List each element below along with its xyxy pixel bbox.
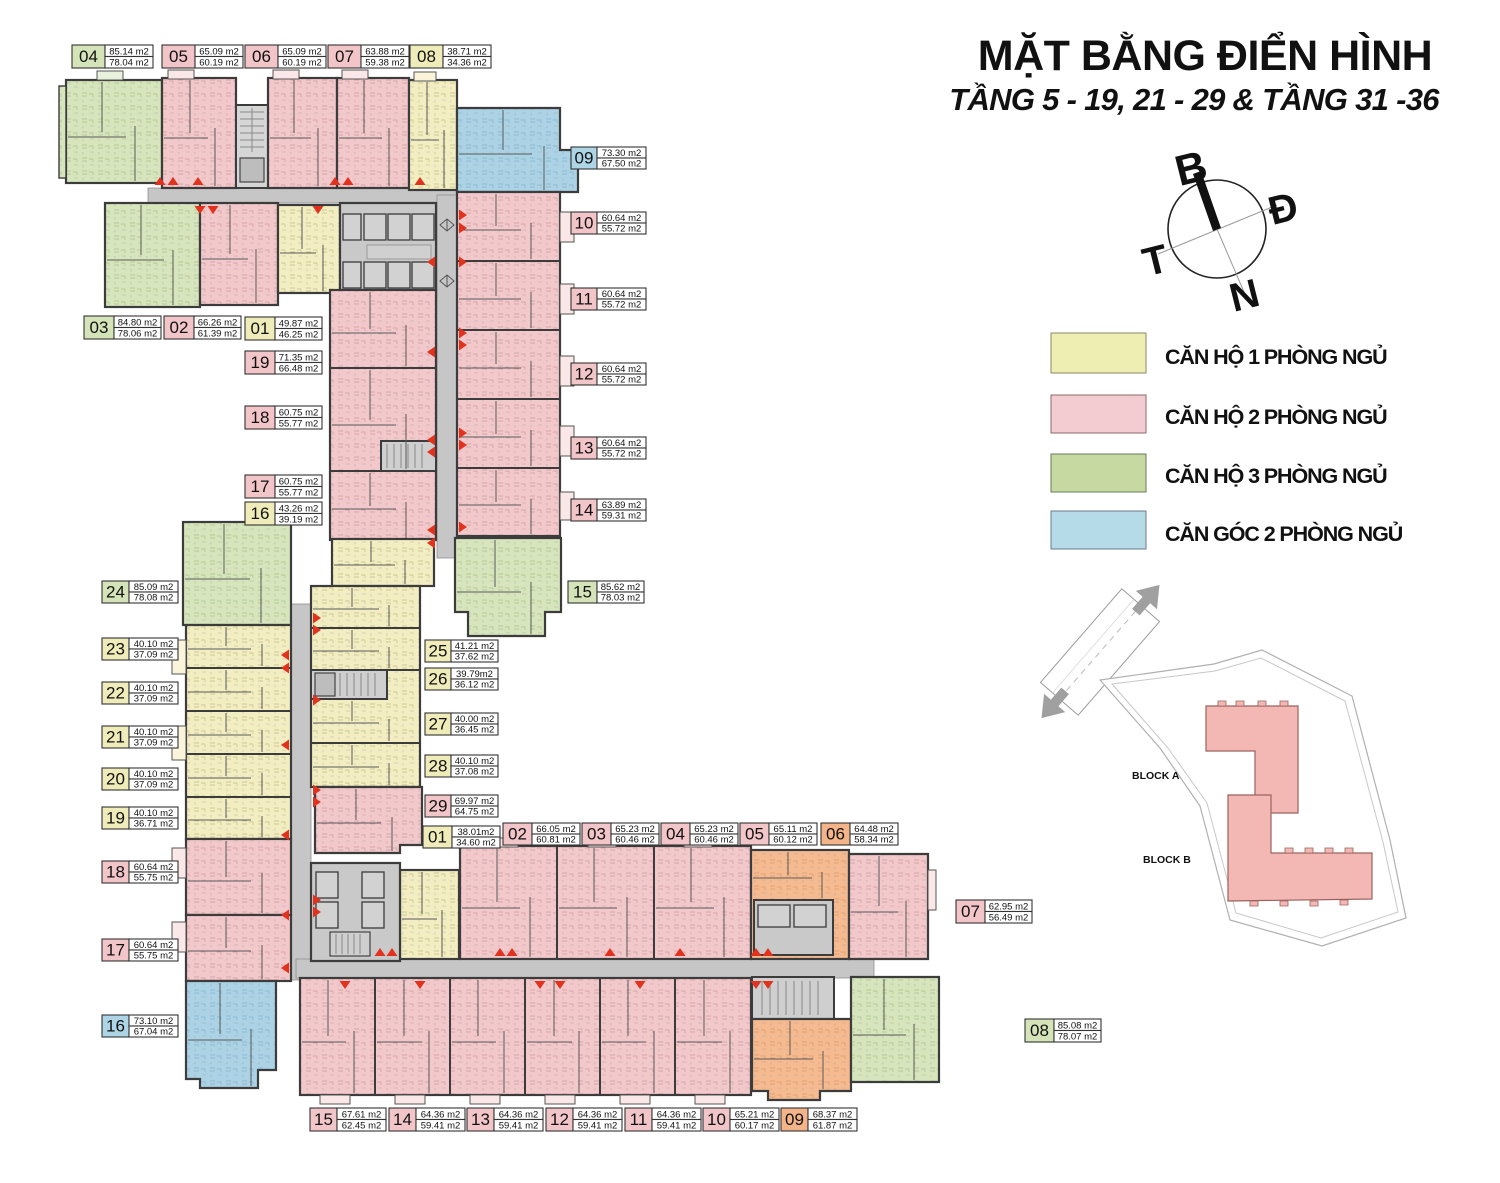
svg-text:62.95 m2: 62.95 m2 <box>989 902 1029 913</box>
svg-text:05: 05 <box>169 47 188 66</box>
svg-text:41.21 m2: 41.21 m2 <box>455 641 495 652</box>
svg-text:73.30 m2: 73.30 m2 <box>602 148 642 159</box>
svg-text:11: 11 <box>575 290 593 309</box>
svg-text:78.08 m2: 78.08 m2 <box>134 593 174 604</box>
svg-text:59.41 m2: 59.41 m2 <box>421 1121 461 1132</box>
svg-text:17: 17 <box>106 941 125 960</box>
svg-text:85.62 m2: 85.62 m2 <box>601 582 641 593</box>
svg-text:55.77 m2: 55.77 m2 <box>279 488 319 499</box>
svg-text:01: 01 <box>251 319 270 338</box>
svg-text:55.75 m2: 55.75 m2 <box>134 873 174 884</box>
svg-text:67.50 m2: 67.50 m2 <box>602 159 642 170</box>
svg-text:CĂN HỘ 3 PHÒNG NGỦ: CĂN HỘ 3 PHÒNG NGỦ <box>1165 463 1387 488</box>
svg-text:06: 06 <box>252 47 271 66</box>
svg-text:19: 19 <box>106 809 125 828</box>
svg-text:36.71 m2: 36.71 m2 <box>134 819 174 830</box>
svg-text:39.79m2: 39.79m2 <box>456 669 493 680</box>
svg-text:84.80 m2: 84.80 m2 <box>118 318 158 329</box>
svg-text:63.88 m2: 63.88 m2 <box>365 47 405 58</box>
svg-text:38.01m2: 38.01m2 <box>458 827 495 838</box>
svg-text:12: 12 <box>550 1110 569 1129</box>
svg-text:14: 14 <box>393 1110 412 1129</box>
svg-text:16: 16 <box>106 1017 125 1036</box>
svg-text:60.12 m2: 60.12 m2 <box>773 835 813 846</box>
svg-text:66.05 m2: 66.05 m2 <box>536 824 576 835</box>
svg-text:46.25 m2: 46.25 m2 <box>279 330 319 341</box>
svg-text:43.26 m2: 43.26 m2 <box>279 504 319 515</box>
svg-text:10: 10 <box>575 214 594 233</box>
svg-text:59.41 m2: 59.41 m2 <box>657 1121 697 1132</box>
svg-text:27: 27 <box>429 715 448 734</box>
svg-text:18: 18 <box>106 863 125 882</box>
svg-text:03: 03 <box>587 825 606 844</box>
svg-text:49.87 m2: 49.87 m2 <box>279 319 319 330</box>
svg-text:60.64 m2: 60.64 m2 <box>602 289 642 300</box>
svg-text:11: 11 <box>630 1110 648 1129</box>
svg-text:59.41 m2: 59.41 m2 <box>578 1121 618 1132</box>
svg-text:28: 28 <box>429 757 448 776</box>
svg-text:20: 20 <box>106 770 125 789</box>
svg-text:69.97 m2: 69.97 m2 <box>455 796 495 807</box>
svg-text:64.36 m2: 64.36 m2 <box>578 1110 618 1121</box>
svg-text:06: 06 <box>826 825 845 844</box>
svg-text:65.23 m2: 65.23 m2 <box>694 824 734 835</box>
svg-text:37.62 m2: 37.62 m2 <box>455 652 495 663</box>
svg-text:40.10 m2: 40.10 m2 <box>134 683 174 694</box>
svg-text:60.17 m2: 60.17 m2 <box>735 1121 775 1132</box>
svg-text:03: 03 <box>90 318 109 337</box>
svg-text:CĂN HỘ 2 PHÒNG NGỦ: CĂN HỘ 2 PHÒNG NGỦ <box>1165 404 1387 429</box>
svg-text:15: 15 <box>573 583 592 602</box>
svg-text:25: 25 <box>429 642 448 661</box>
svg-text:85.14 m2: 85.14 m2 <box>109 47 149 58</box>
svg-text:37.09 m2: 37.09 m2 <box>134 780 174 791</box>
svg-text:60.64 m2: 60.64 m2 <box>134 940 174 951</box>
svg-text:BLOCK A: BLOCK A <box>1132 770 1180 782</box>
svg-text:78.07 m2: 78.07 m2 <box>1058 1032 1098 1043</box>
svg-text:60.19 m2: 60.19 m2 <box>282 58 322 69</box>
svg-text:66.26 m2: 66.26 m2 <box>198 318 238 329</box>
svg-text:68.37 m2: 68.37 m2 <box>813 1110 853 1121</box>
svg-text:02: 02 <box>170 318 189 337</box>
svg-text:36.45 m2: 36.45 m2 <box>455 725 495 736</box>
svg-text:34.36 m2: 34.36 m2 <box>447 58 487 69</box>
svg-text:65.09 m2: 65.09 m2 <box>282 47 322 58</box>
svg-text:MẶT BẰNG ĐIỂN HÌNH: MẶT BẰNG ĐIỂN HÌNH <box>978 31 1432 80</box>
svg-text:64.75 m2: 64.75 m2 <box>455 807 495 818</box>
svg-text:36.12 m2: 36.12 m2 <box>455 680 495 691</box>
svg-text:61.87 m2: 61.87 m2 <box>813 1121 853 1132</box>
svg-text:40.10 m2: 40.10 m2 <box>134 639 174 650</box>
svg-text:CĂN GÓC 2 PHÒNG NGỦ: CĂN GÓC 2 PHÒNG NGỦ <box>1165 521 1403 546</box>
svg-text:29: 29 <box>429 797 448 816</box>
svg-text:56.49 m2: 56.49 m2 <box>989 913 1029 924</box>
svg-text:37.08 m2: 37.08 m2 <box>455 767 495 778</box>
svg-text:16: 16 <box>251 504 270 523</box>
svg-text:60.75 m2: 60.75 m2 <box>279 477 319 488</box>
svg-text:40.00 m2: 40.00 m2 <box>455 714 495 725</box>
svg-text:21: 21 <box>106 728 125 747</box>
svg-text:05: 05 <box>745 825 764 844</box>
svg-text:13: 13 <box>471 1110 490 1129</box>
svg-text:22: 22 <box>106 684 125 703</box>
svg-text:08: 08 <box>1030 1021 1049 1040</box>
svg-text:60.46 m2: 60.46 m2 <box>694 835 734 846</box>
svg-text:14: 14 <box>575 501 594 520</box>
svg-text:38.71 m2: 38.71 m2 <box>447 47 487 58</box>
svg-text:15: 15 <box>314 1110 333 1129</box>
svg-text:55.72 m2: 55.72 m2 <box>602 300 642 311</box>
svg-text:71.35 m2: 71.35 m2 <box>279 353 319 364</box>
svg-text:67.04 m2: 67.04 m2 <box>134 1027 174 1038</box>
svg-text:59.41 m2: 59.41 m2 <box>499 1121 539 1132</box>
svg-text:37.09 m2: 37.09 m2 <box>134 694 174 705</box>
svg-text:60.19 m2: 60.19 m2 <box>199 58 239 69</box>
svg-text:55.72 m2: 55.72 m2 <box>602 224 642 235</box>
svg-text:62.45 m2: 62.45 m2 <box>342 1121 382 1132</box>
svg-text:60.64 m2: 60.64 m2 <box>602 364 642 375</box>
svg-text:66.48 m2: 66.48 m2 <box>279 364 319 375</box>
svg-text:59.31 m2: 59.31 m2 <box>602 511 642 522</box>
svg-text:78.03 m2: 78.03 m2 <box>601 593 641 604</box>
svg-text:63.89 m2: 63.89 m2 <box>602 500 642 511</box>
svg-text:60.81 m2: 60.81 m2 <box>536 835 576 846</box>
svg-text:08: 08 <box>417 47 436 66</box>
svg-text:01: 01 <box>428 828 447 847</box>
svg-text:BLOCK B: BLOCK B <box>1143 854 1191 866</box>
svg-text:40.10 m2: 40.10 m2 <box>134 808 174 819</box>
svg-text:07: 07 <box>961 902 980 921</box>
svg-text:60.46 m2: 60.46 m2 <box>615 835 655 846</box>
svg-text:40.10 m2: 40.10 m2 <box>134 727 174 738</box>
svg-text:12: 12 <box>575 365 594 384</box>
svg-text:78.06 m2: 78.06 m2 <box>118 329 158 340</box>
svg-text:64.48 m2: 64.48 m2 <box>854 824 894 835</box>
svg-text:TẦNG 5 - 19, 21 - 29 & TẦNG 31: TẦNG 5 - 19, 21 - 29 & TẦNG 31 -36 <box>949 82 1440 117</box>
svg-text:64.36 m2: 64.36 m2 <box>421 1110 461 1121</box>
svg-text:02: 02 <box>508 825 527 844</box>
svg-text:26: 26 <box>429 670 448 689</box>
svg-text:09: 09 <box>575 149 594 168</box>
svg-text:07: 07 <box>335 47 354 66</box>
svg-text:67.61 m2: 67.61 m2 <box>342 1110 382 1121</box>
svg-text:40.10 m2: 40.10 m2 <box>134 769 174 780</box>
svg-text:55.72 m2: 55.72 m2 <box>602 375 642 386</box>
svg-text:78.04 m2: 78.04 m2 <box>109 58 149 69</box>
svg-text:64.36 m2: 64.36 m2 <box>499 1110 539 1121</box>
svg-text:55.77 m2: 55.77 m2 <box>279 419 319 430</box>
svg-text:64.36 m2: 64.36 m2 <box>657 1110 697 1121</box>
svg-text:85.08 m2: 85.08 m2 <box>1058 1021 1098 1032</box>
svg-text:17: 17 <box>251 477 270 496</box>
svg-text:18: 18 <box>251 408 270 427</box>
svg-text:37.09 m2: 37.09 m2 <box>134 738 174 749</box>
svg-text:60.64 m2: 60.64 m2 <box>134 862 174 873</box>
svg-text:59.38 m2: 59.38 m2 <box>365 58 405 69</box>
svg-text:58.34 m2: 58.34 m2 <box>854 835 894 846</box>
svg-text:23: 23 <box>106 640 125 659</box>
svg-text:65.23 m2: 65.23 m2 <box>615 824 655 835</box>
svg-text:61.39 m2: 61.39 m2 <box>198 329 238 340</box>
svg-text:60.64 m2: 60.64 m2 <box>602 213 642 224</box>
svg-text:13: 13 <box>575 439 594 458</box>
svg-text:10: 10 <box>707 1110 726 1129</box>
svg-text:CĂN HỘ 1 PHÒNG NGỦ: CĂN HỘ 1 PHÒNG NGỦ <box>1165 344 1387 369</box>
svg-text:65.09 m2: 65.09 m2 <box>199 47 239 58</box>
svg-text:37.09 m2: 37.09 m2 <box>134 650 174 661</box>
svg-text:04: 04 <box>666 825 685 844</box>
svg-text:24: 24 <box>106 583 125 602</box>
svg-text:09: 09 <box>785 1110 804 1129</box>
svg-text:60.75 m2: 60.75 m2 <box>279 408 319 419</box>
svg-text:34.60 m2: 34.60 m2 <box>456 838 496 849</box>
svg-text:60.64 m2: 60.64 m2 <box>602 438 642 449</box>
svg-text:55.72 m2: 55.72 m2 <box>602 449 642 460</box>
svg-text:65.21 m2: 65.21 m2 <box>735 1110 775 1121</box>
svg-text:85.09 m2: 85.09 m2 <box>134 582 174 593</box>
svg-text:65.11 m2: 65.11 m2 <box>774 824 813 835</box>
svg-text:39.19 m2: 39.19 m2 <box>279 515 319 526</box>
svg-text:19: 19 <box>251 353 270 372</box>
svg-text:73.10 m2: 73.10 m2 <box>134 1016 174 1027</box>
svg-text:55.75 m2: 55.75 m2 <box>134 951 174 962</box>
svg-text:40.10 m2: 40.10 m2 <box>455 756 495 767</box>
svg-text:04: 04 <box>79 47 98 66</box>
